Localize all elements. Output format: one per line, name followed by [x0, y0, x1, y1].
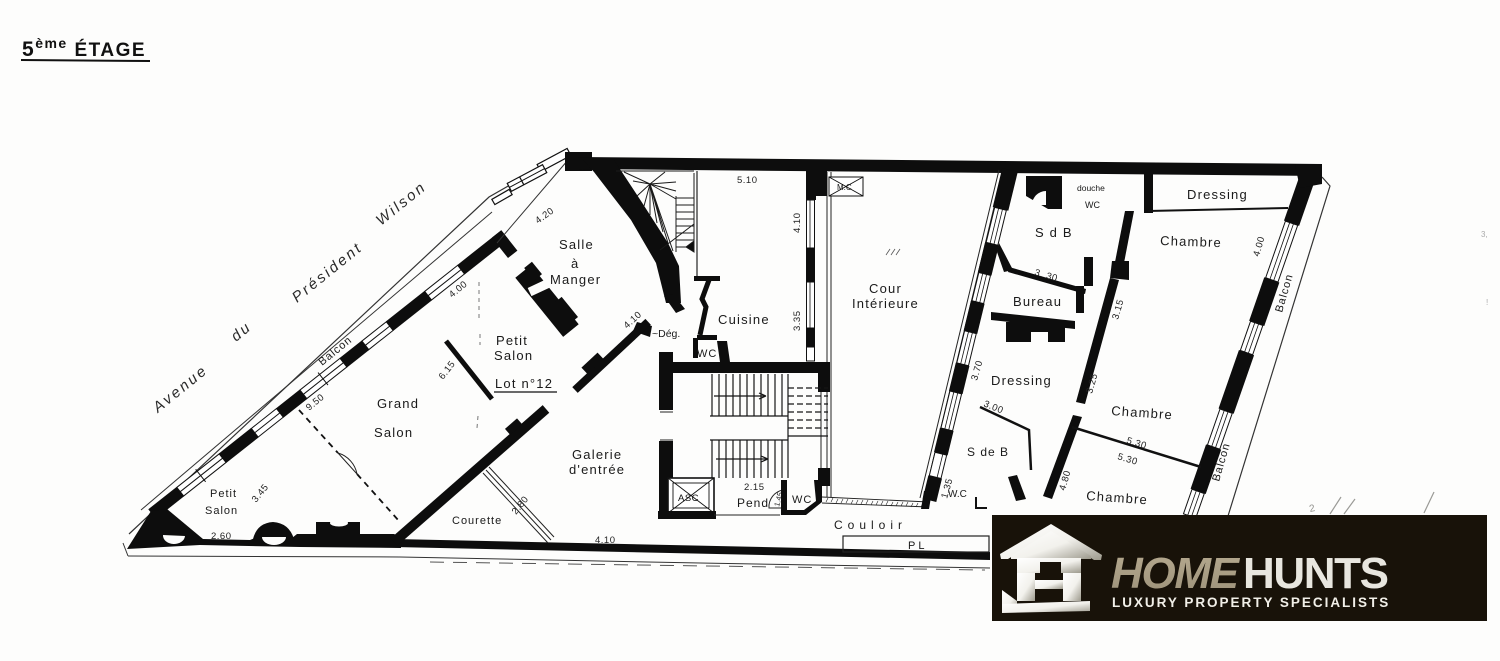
svg-text:4.10: 4.10	[595, 535, 616, 546]
svg-text:Chambre: Chambre	[1160, 233, 1222, 250]
svg-text:2.60: 2.60	[211, 531, 232, 542]
svg-text:4.10: 4.10	[792, 213, 803, 234]
svg-text:ASC: ASC	[678, 493, 699, 504]
svg-text:LUXURY PROPERTY SPECIALISTS: LUXURY PROPERTY SPECIALISTS	[1112, 595, 1389, 610]
svg-text:Grand: Grand	[377, 396, 419, 411]
svg-text:Cour: Cour	[869, 281, 902, 296]
svg-text:HUNTS: HUNTS	[1243, 549, 1389, 598]
svg-text:douche: douche	[1077, 183, 1105, 193]
svg-text:Petit: Petit	[496, 333, 528, 348]
svg-text:Salle: Salle	[559, 237, 594, 252]
svg-text:Pend: Pend	[737, 496, 769, 510]
svg-text:Dressing: Dressing	[1187, 187, 1248, 202]
svg-text:WC: WC	[1085, 200, 1100, 210]
svg-text:M.C: M.C	[837, 183, 852, 192]
svg-text:HOME: HOME	[1111, 549, 1241, 598]
svg-text:S de B: S de B	[967, 445, 1009, 459]
svg-text:3,: 3,	[1481, 230, 1488, 239]
svg-text:Courette: Courette	[452, 515, 502, 527]
svg-text:Couloir: Couloir	[834, 518, 907, 532]
svg-text:d'entrée: d'entrée	[569, 462, 625, 477]
svg-text:Petit: Petit	[210, 488, 237, 500]
svg-text:Dressing: Dressing	[991, 373, 1052, 388]
svg-text:WC: WC	[697, 348, 717, 360]
svg-text:5.10: 5.10	[737, 175, 758, 186]
svg-text:!: !	[1486, 298, 1488, 307]
svg-text:Lot n°12: Lot n°12	[495, 376, 553, 391]
svg-text:Bureau: Bureau	[1013, 294, 1062, 309]
svg-text:Intérieure: Intérieure	[852, 296, 919, 311]
svg-text:Salon: Salon	[205, 505, 238, 517]
svg-text:Cuisine: Cuisine	[718, 312, 770, 327]
svg-text:W.C: W.C	[948, 489, 967, 500]
svg-text:Salon: Salon	[374, 425, 413, 440]
svg-text:PL: PL	[908, 540, 927, 552]
svg-text:~Dég.: ~Dég.	[652, 328, 680, 340]
svg-text:à: à	[571, 256, 579, 271]
svg-text:WC: WC	[792, 494, 812, 506]
svg-text:Galerie: Galerie	[572, 447, 622, 462]
svg-text:3.35: 3.35	[792, 311, 803, 332]
svg-text:Salon: Salon	[494, 348, 533, 363]
svg-text:Manger: Manger	[550, 272, 601, 287]
svg-text:S d B: S d B	[1035, 225, 1073, 240]
svg-text:2.15: 2.15	[744, 482, 765, 493]
